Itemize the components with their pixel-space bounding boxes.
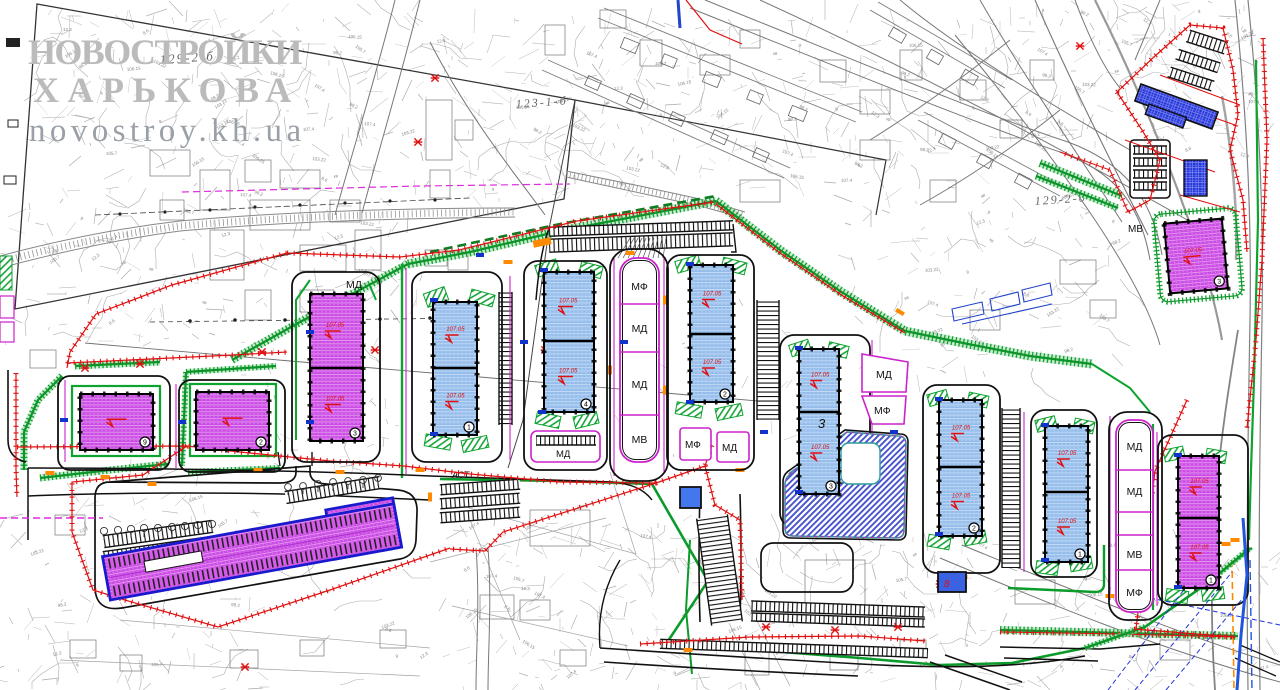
svg-text:МВ: МВ [1128,224,1143,235]
svg-text:МД: МД [632,323,648,335]
svg-text:МД: МД [1127,486,1143,498]
svg-text:3: 3 [829,484,833,491]
svg-text:1: 1 [467,425,471,432]
svg-text:2: 2 [972,526,976,533]
svg-text:3: 3 [353,431,357,438]
svg-text:107.4: 107.4 [841,178,853,183]
svg-text:107.05: 107.05 [1190,545,1209,551]
svg-text:98.2: 98.2 [920,147,929,152]
svg-text:novostroy.kh.ua: novostroy.kh.ua [29,113,306,149]
svg-text:МФ: МФ [631,281,648,293]
svg-text:107.4: 107.4 [1248,99,1260,104]
svg-text:3: 3 [818,416,826,431]
svg-text:1: 1 [1078,552,1082,559]
svg-text:МФ: МФ [1126,587,1143,599]
svg-text:107.05: 107.05 [952,494,971,500]
svg-text:107.05: 107.05 [326,397,345,403]
svg-text:МД: МД [346,279,362,291]
svg-text:107.4: 107.4 [486,573,498,579]
svg-text:107.05: 107.05 [559,369,578,375]
svg-text:107.05: 107.05 [811,373,830,379]
svg-text:9: 9 [143,440,147,447]
svg-text:98.2: 98.2 [333,50,343,56]
svg-text:1: 1 [1209,578,1213,585]
svg-text:107.4: 107.4 [240,192,252,198]
svg-text:107.05: 107.05 [326,323,345,329]
svg-text:2: 2 [723,392,727,399]
svg-text:107.05: 107.05 [811,445,830,451]
svg-text:ХАРЬКОВА: ХАРЬКОВА [33,70,300,110]
svg-text:107.05: 107.05 [446,394,465,400]
svg-text:НОВОСТРОЙКИ: НОВОСТРОЙКИ [28,32,302,72]
svg-text:107.05: 107.05 [1058,519,1077,525]
svg-text:12.3: 12.3 [521,586,530,591]
svg-text:4: 4 [584,402,588,409]
svg-text:МД: МД [722,443,737,454]
svg-text:107.05: 107.05 [952,426,971,432]
svg-text:2: 2 [259,440,263,447]
svg-text:107.05: 107.05 [1058,451,1077,457]
svg-text:106.15: 106.15 [909,43,923,48]
svg-text:МВ: МВ [632,434,648,446]
svg-text:107.05: 107.05 [703,292,722,298]
svg-text:8: 8 [944,579,950,590]
svg-text:106.15: 106.15 [348,34,363,40]
svg-text:107.05: 107.05 [1190,479,1209,485]
svg-text:МД: МД [876,369,892,381]
svg-text:МД: МД [1127,441,1143,453]
svg-text:107.05: 107.05 [446,327,465,333]
svg-text:103.22: 103.22 [1082,82,1096,87]
svg-text:МД: МД [556,449,571,460]
svg-text:МВ: МВ [1127,549,1143,561]
svg-text:3: 3 [1217,278,1222,285]
svg-text:МФ: МФ [685,440,701,451]
svg-text:107.05: 107.05 [703,360,722,366]
svg-text:105.7: 105.7 [106,151,118,156]
svg-text:МД: МД [632,379,648,391]
svg-text:МФ: МФ [874,405,891,417]
svg-text:107.05: 107.05 [559,299,578,305]
